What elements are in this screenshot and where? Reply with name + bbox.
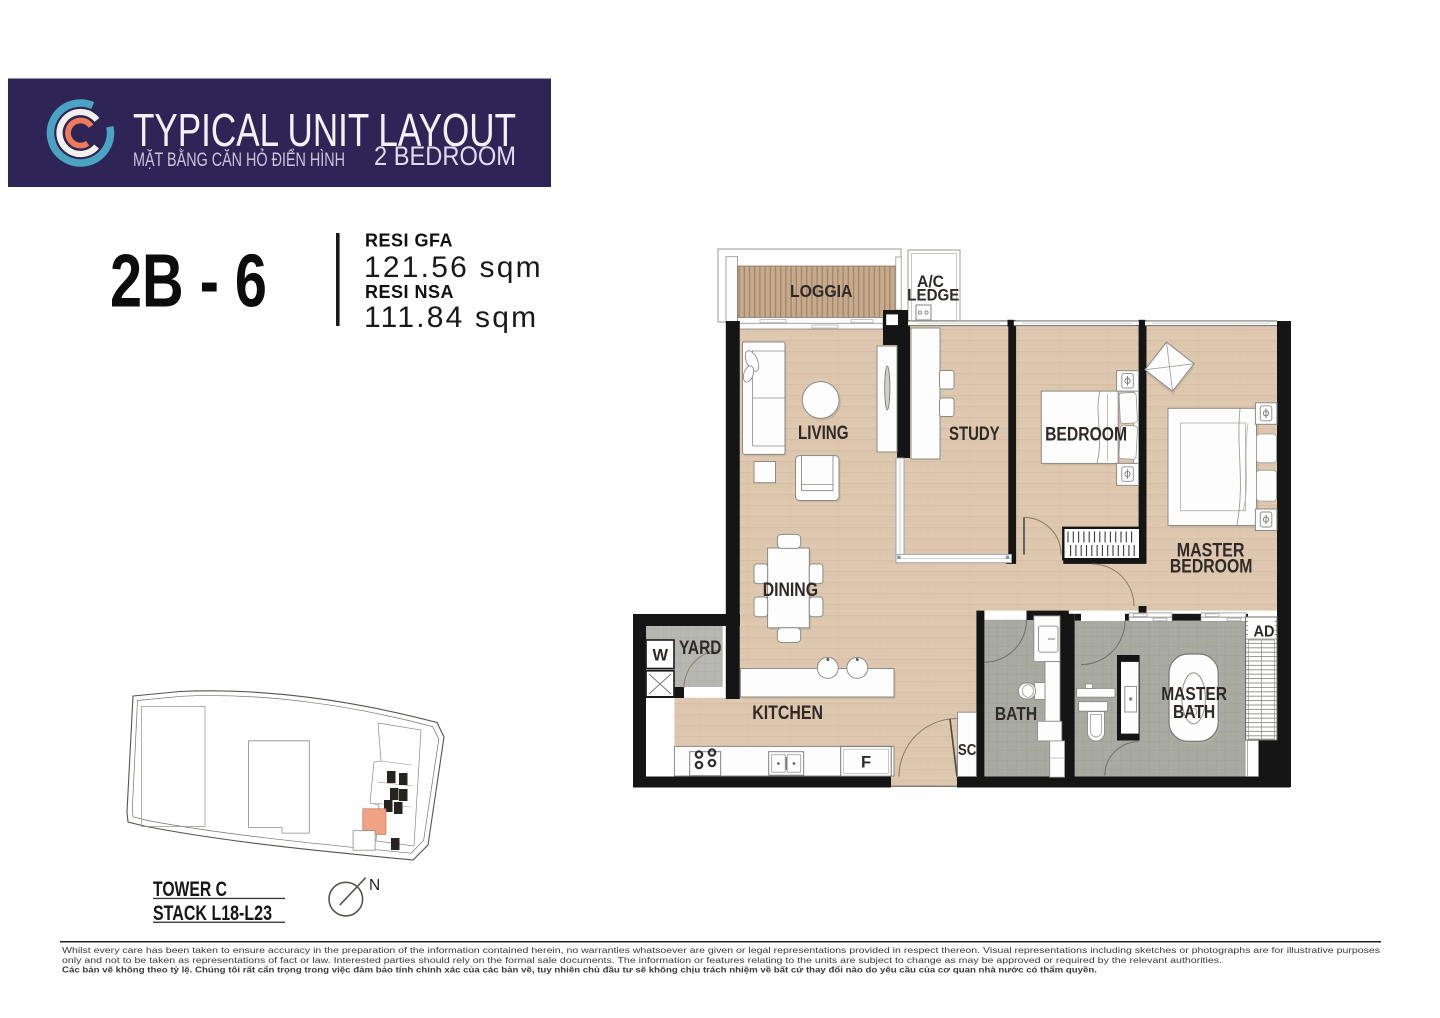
svg-text:BATH: BATH bbox=[1173, 701, 1215, 722]
svg-text:SC: SC bbox=[958, 742, 977, 759]
svg-text:STUDY: STUDY bbox=[949, 424, 1000, 445]
svg-text:LIVING: LIVING bbox=[798, 423, 849, 444]
svg-text:KITCHEN: KITCHEN bbox=[752, 703, 823, 724]
svg-text:N: N bbox=[369, 877, 380, 894]
svg-text:STACK L18-L23: STACK L18-L23 bbox=[153, 902, 272, 925]
svg-text:DINING: DINING bbox=[763, 580, 818, 601]
svg-text:TOWER C: TOWER C bbox=[153, 878, 227, 901]
svg-text:only and not to be taken as re: only and not to be taken as representati… bbox=[62, 956, 1222, 965]
svg-text:RESI GFA: RESI GFA bbox=[365, 231, 453, 251]
svg-text:BEDROOM: BEDROOM bbox=[1170, 555, 1253, 577]
svg-text:Whilst every care has been tak: Whilst every care has been taken to ensu… bbox=[62, 946, 1380, 955]
svg-text:2 BEDROOM: 2 BEDROOM bbox=[374, 141, 516, 171]
svg-text:Các bản vẽ không theo tỷ lệ. C: Các bản vẽ không theo tỷ lệ. Chúng tôi r… bbox=[62, 966, 1097, 975]
svg-text:BATH: BATH bbox=[995, 703, 1037, 724]
svg-text:AD: AD bbox=[1254, 623, 1275, 640]
svg-text:RESI NSA: RESI NSA bbox=[365, 282, 454, 302]
svg-text:BEDROOM: BEDROOM bbox=[1045, 425, 1127, 446]
svg-text:LOGGIA: LOGGIA bbox=[790, 281, 853, 301]
svg-text:121.56 sqm: 121.56 sqm bbox=[364, 251, 543, 284]
svg-text:W: W bbox=[653, 647, 669, 665]
svg-text:YARD: YARD bbox=[679, 638, 722, 659]
svg-text:2B - 6: 2B - 6 bbox=[110, 239, 267, 323]
svg-text:LEDGE: LEDGE bbox=[907, 285, 959, 304]
svg-text:MẶT BẰNG CĂN HỎ ĐIỂN HÌNH: MẶT BẰNG CĂN HỎ ĐIỂN HÌNH bbox=[133, 149, 345, 171]
svg-text:F: F bbox=[861, 754, 871, 772]
svg-text:111.84 sqm: 111.84 sqm bbox=[364, 301, 538, 334]
